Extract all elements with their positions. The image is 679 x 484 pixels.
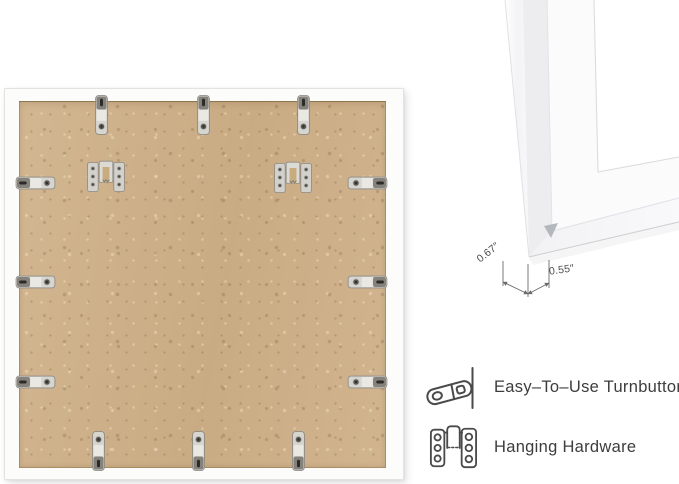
dimension-lines <box>503 260 549 297</box>
sawtooth-hanger-icon <box>87 159 125 195</box>
turnbutton-icon <box>16 376 56 389</box>
hanging-hardware-feature-icon <box>428 422 478 472</box>
frame-back-photo <box>4 88 404 480</box>
turnbutton-icon <box>95 95 108 135</box>
sawtooth-hanger-icon <box>274 160 312 196</box>
turnbutton-icon <box>348 276 388 289</box>
mdf-backing <box>19 101 386 468</box>
turnbutton-feature-icon <box>426 363 478 411</box>
turnbutton-icon <box>92 431 105 471</box>
turnbutton-icon <box>348 177 388 190</box>
turnbutton-icon <box>16 177 56 190</box>
turnbutton-icon <box>297 95 310 135</box>
turnbutton-icon <box>348 376 388 389</box>
product-image-canvas: 0.67″ 0.55″ Easy–To–Use Turnbuttons <box>0 0 679 484</box>
feature-item-turnbuttons: Easy–To–Use Turnbuttons <box>426 363 679 411</box>
artwork-area <box>594 0 679 172</box>
turnbutton-icon <box>16 276 56 289</box>
feature-label: Hanging Hardware <box>494 438 636 457</box>
feature-label: Easy–To–Use Turnbuttons <box>494 378 679 397</box>
dimension-label-depth: 0.55″ <box>548 262 575 277</box>
feature-item-hanging-hardware: Hanging Hardware <box>428 422 636 472</box>
dimension-label-width: 0.67″ <box>475 240 502 265</box>
frame-corner-illustration: 0.67″ 0.55″ <box>440 0 679 340</box>
turnbutton-icon <box>192 431 205 471</box>
turnbutton-icon <box>197 95 210 135</box>
turnbutton-icon <box>292 431 305 471</box>
